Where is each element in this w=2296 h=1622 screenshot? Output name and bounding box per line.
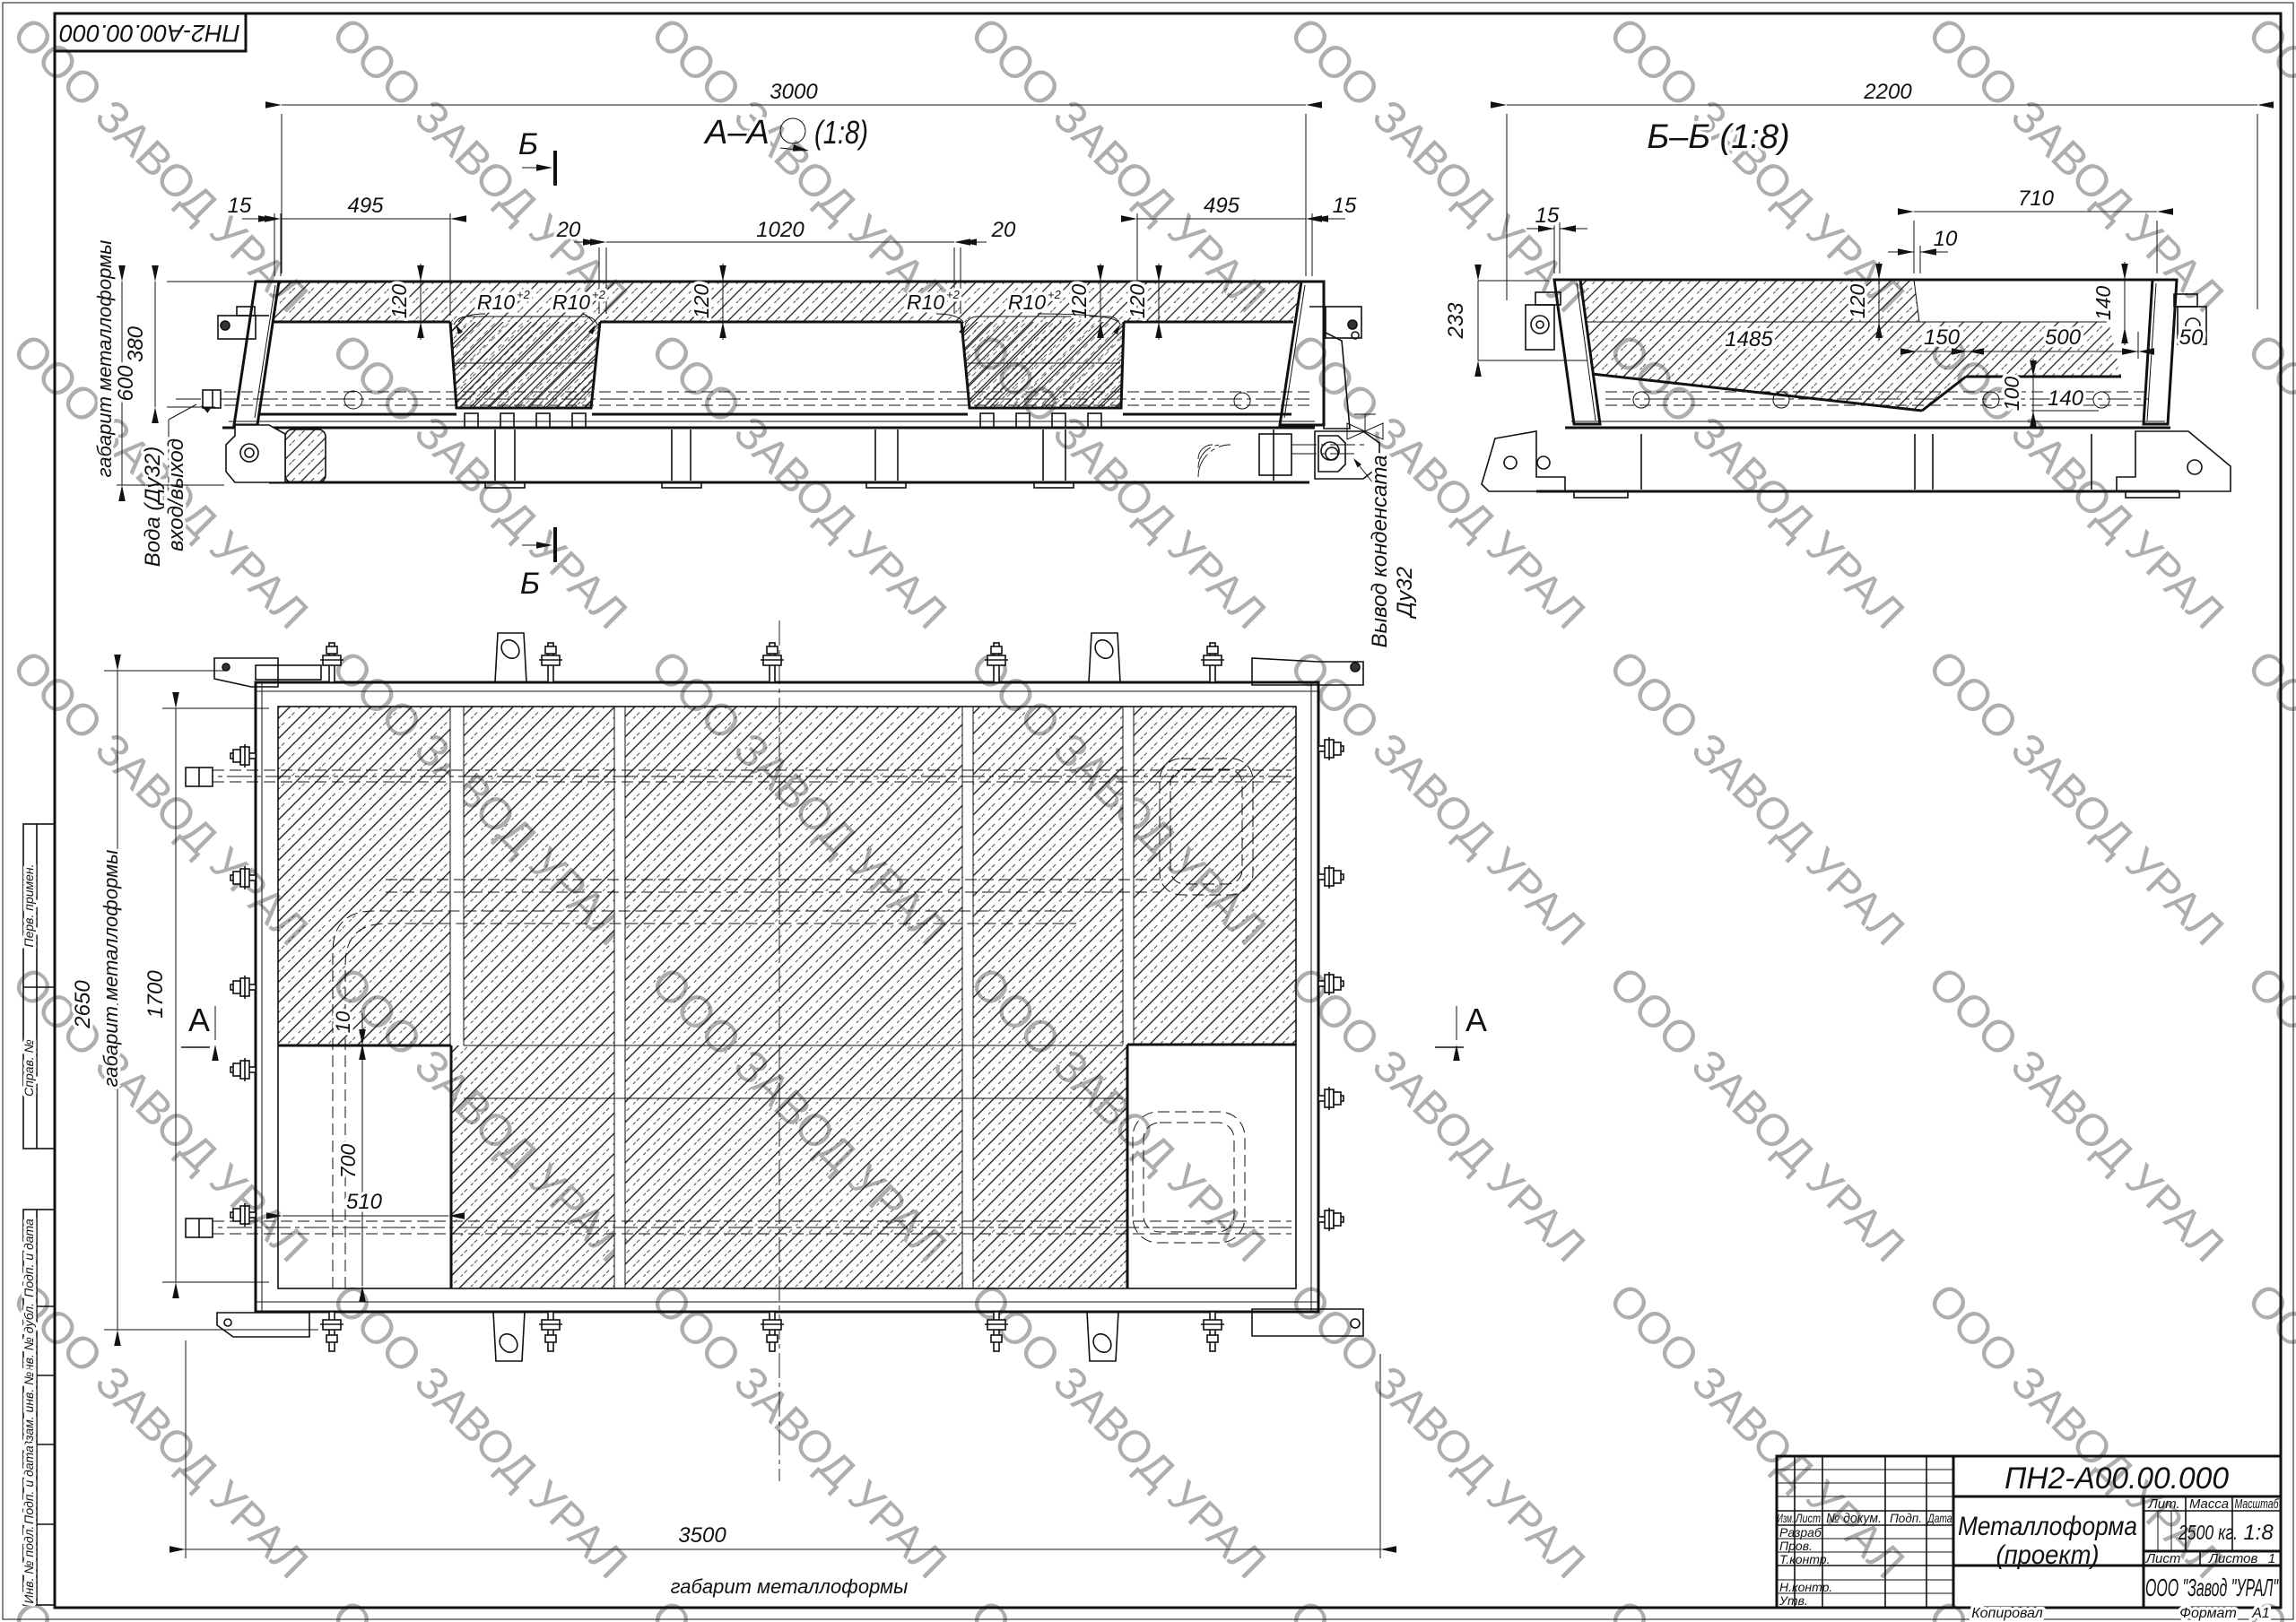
svg-text:2500 кг.: 2500 кг. — [2178, 1521, 2238, 1544]
svg-text:ПН2-А00.00.000: ПН2-А00.00.000 — [59, 20, 239, 47]
svg-text:(проект): (проект) — [1996, 1540, 2100, 1570]
svg-text:Копировал: Копировал — [1971, 1606, 2043, 1621]
svg-text:Масса: Масса — [2189, 1496, 2229, 1512]
svg-text:габарит металлоформы: габарит металлоформы — [93, 240, 116, 478]
svg-text:Б: Б — [518, 127, 538, 161]
svg-text:ООО ЗАВОД УРАЛ: ООО ЗАВОД УРАЛ — [1599, 957, 1914, 1271]
svg-text:ООО ЗАВОД УРАЛ: ООО ЗАВОД УРАЛ — [1280, 7, 1595, 322]
svg-text:ООО ЗАВОД УРАЛ: ООО ЗАВОД УРАЛ — [1599, 7, 1914, 322]
svg-text:20: 20 — [556, 218, 581, 242]
svg-text:120: 120 — [1126, 284, 1149, 319]
svg-text:120: 120 — [387, 284, 411, 319]
svg-text:Лит.: Лит. — [2147, 1496, 2179, 1512]
svg-text:ООО ЗАВОД УРАЛ: ООО ЗАВОД УРАЛ — [322, 7, 637, 322]
svg-text:Инв. № дубл.: Инв. № дубл. — [22, 1303, 36, 1380]
svg-text:+2: +2 — [517, 288, 531, 301]
svg-text:ООО ЗАВОД УРАЛ: ООО ЗАВОД УРАЛ — [1918, 640, 2233, 955]
svg-text:140: 140 — [2048, 386, 2084, 411]
svg-text:Лист: Лист — [2145, 1551, 2181, 1566]
svg-text:R10: R10 — [552, 291, 590, 314]
svg-text:ООО ЗАВОД УРАЛ: ООО ЗАВОД УРАЛ — [1599, 640, 1914, 955]
svg-text:Изм.: Изм. — [1778, 1511, 1795, 1525]
svg-text:Дата: Дата — [1926, 1511, 1952, 1525]
svg-text:ООО ЗАВОД УРАЛ: ООО ЗАВОД УРАЛ — [1280, 1273, 1595, 1588]
svg-text:габарит металлоформы: габарит металлоформы — [671, 1575, 909, 1598]
svg-text:Подп. и дата: Подп. и дата — [22, 1219, 36, 1297]
svg-text:ПН2-А00.00.000: ПН2-А00.00.000 — [2005, 1462, 2229, 1496]
svg-text:1: 1 — [2268, 1551, 2275, 1566]
svg-text:120: 120 — [690, 284, 713, 319]
svg-text:Разраб.: Разраб. — [1779, 1525, 1825, 1540]
svg-text:ООО ЗАВОД УРАЛ: ООО ЗАВОД УРАЛ — [322, 1273, 637, 1588]
svg-text:495: 495 — [1204, 194, 1240, 218]
svg-text:ООО ЗАВОД УРАЛ: ООО ЗАВОД УРАЛ — [961, 1590, 1275, 1622]
svg-text:А–А: А–А — [703, 114, 770, 152]
svg-text:Инв. № подл.: Инв. № подл. — [22, 1526, 36, 1604]
svg-text:1485: 1485 — [1725, 327, 1773, 351]
svg-text:Утв.: Утв. — [1779, 1593, 1808, 1608]
svg-text:Б: Б — [520, 567, 540, 601]
svg-text:3000: 3000 — [770, 80, 818, 104]
svg-text:ООО ЗАВОД УРАЛ: ООО ЗАВОД УРАЛ — [2238, 324, 2296, 638]
svg-text:233: 233 — [1444, 302, 1468, 340]
svg-text:ООО ЗАВОД УРАЛ: ООО ЗАВОД УРАЛ — [961, 7, 1275, 322]
svg-text:Взам. инв. №: Взам. инв. № — [22, 1372, 36, 1450]
svg-text:габарит металлоформы: габарит металлоформы — [100, 850, 122, 1088]
svg-text:А1: А1 — [2251, 1606, 2270, 1621]
svg-text:ООО ЗАВОД УРАЛ: ООО ЗАВОД УРАЛ — [2238, 7, 2296, 322]
svg-text:Б–Б (1:8): Б–Б (1:8) — [1647, 118, 1789, 156]
svg-text:10: 10 — [332, 1010, 354, 1033]
svg-text:510: 510 — [346, 1190, 383, 1214]
svg-text:(1:8): (1:8) — [814, 114, 868, 151]
svg-text:1020: 1020 — [756, 218, 804, 242]
svg-text:ООО ЗАВОД УРАЛ: ООО ЗАВОД УРАЛ — [1599, 1590, 1914, 1622]
svg-text:Пров.: Пров. — [1779, 1539, 1813, 1553]
svg-text:Вывод конденсата: Вывод конденсата — [1368, 455, 1392, 647]
svg-text:2650: 2650 — [71, 980, 95, 1029]
svg-text:ООО ЗАВОД УРАЛ: ООО ЗАВОД УРАЛ — [3, 1273, 317, 1588]
svg-text:Подп.: Подп. — [1890, 1511, 1922, 1525]
svg-text:ООО ЗАВОД УРАЛ: ООО ЗАВОД УРАЛ — [1918, 7, 2233, 322]
svg-text:Ду32: Ду32 — [1393, 567, 1417, 620]
svg-text:ООО ЗАВОД УРАЛ: ООО ЗАВОД УРАЛ — [3, 1590, 317, 1622]
svg-text:Листов: Листов — [2208, 1551, 2258, 1566]
svg-text:+2: +2 — [946, 288, 961, 301]
svg-text:Н.контр.: Н.контр. — [1779, 1580, 1832, 1594]
svg-text:ООО ЗАВОД УРАЛ: ООО ЗАВОД УРАЛ — [2238, 640, 2296, 955]
svg-text:100: 100 — [2000, 377, 2023, 412]
svg-text:150: 150 — [1924, 325, 1961, 350]
svg-text:Формат: Формат — [2179, 1606, 2237, 1621]
svg-text:А: А — [1465, 1002, 1487, 1038]
svg-text:15: 15 — [1333, 194, 1357, 218]
svg-text:Т.контр.: Т.контр. — [1779, 1552, 1830, 1566]
svg-text:ООО ЗАВОД УРАЛ: ООО ЗАВОД УРАЛ — [1280, 1590, 1595, 1622]
svg-text:Лист: Лист — [1795, 1511, 1821, 1525]
svg-text:Масштаб: Масштаб — [2235, 1496, 2279, 1512]
svg-text:Перв. примен.: Перв. примен. — [22, 863, 36, 947]
svg-text:R10: R10 — [477, 291, 515, 314]
svg-text:120: 120 — [1846, 284, 1869, 319]
svg-text:ООО ЗАВОД УРАЛ: ООО ЗАВОД УРАЛ — [3, 7, 317, 322]
svg-text:140: 140 — [2092, 286, 2115, 321]
svg-text:ООО ЗАВОД УРАЛ: ООО ЗАВОД УРАЛ — [1599, 1273, 1914, 1588]
svg-text:ООО ЗАВОД УРАЛ: ООО ЗАВОД УРАЛ — [2238, 957, 2296, 1271]
svg-text:№ докум.: № докум. — [1826, 1511, 1882, 1526]
svg-text:495: 495 — [347, 194, 384, 218]
svg-text:ООО ЗАВОД УРАЛ: ООО ЗАВОД УРАЛ — [1280, 324, 1595, 638]
svg-text:R10: R10 — [1008, 291, 1046, 314]
svg-text:Вода (Ду32): Вода (Ду32) — [141, 447, 165, 567]
svg-text:ООО ЗАВОД УРАЛ: ООО ЗАВОД УРАЛ — [1918, 957, 2233, 1271]
svg-text:1700: 1700 — [143, 970, 168, 1019]
svg-text:1:8: 1:8 — [2243, 1521, 2274, 1545]
svg-text:50: 50 — [2179, 325, 2204, 350]
svg-text:2200: 2200 — [1863, 80, 1912, 104]
svg-text:Подп. и дата: Подп. и дата — [22, 1445, 36, 1524]
svg-text:ООО ЗАВОД УРАЛ: ООО ЗАВОД УРАЛ — [1280, 640, 1595, 955]
svg-text:+2: +2 — [1048, 288, 1062, 301]
svg-text:20: 20 — [991, 218, 1016, 242]
svg-text:ООО ЗАВОД УРАЛ: ООО ЗАВОД УРАЛ — [641, 7, 956, 322]
svg-text:ООО "Завод "УРАЛ": ООО "Завод "УРАЛ" — [2145, 1574, 2279, 1601]
svg-text:600: 600 — [114, 365, 138, 402]
svg-text:Справ. №: Справ. № — [22, 1039, 36, 1097]
svg-text:А: А — [188, 1002, 210, 1038]
svg-text:710: 710 — [2018, 186, 2055, 211]
svg-text:ООО ЗАВОД УРАЛ: ООО ЗАВОД УРАЛ — [3, 640, 317, 955]
svg-text:R10: R10 — [907, 291, 944, 314]
svg-text:15: 15 — [228, 194, 252, 218]
svg-text:ООО ЗАВОД УРАЛ: ООО ЗАВОД УРАЛ — [322, 1590, 637, 1622]
svg-text:120: 120 — [1067, 284, 1091, 319]
svg-text:+2: +2 — [592, 288, 606, 301]
svg-text:15: 15 — [1535, 204, 1560, 228]
svg-text:вход/выход: вход/выход — [164, 438, 188, 551]
svg-text:Металлоформа: Металлоформа — [1958, 1512, 2137, 1541]
svg-text:380: 380 — [124, 325, 148, 362]
svg-text:500: 500 — [2045, 325, 2082, 350]
svg-text:3500: 3500 — [678, 1523, 726, 1548]
svg-text:700: 700 — [336, 1144, 360, 1179]
svg-text:10: 10 — [1934, 227, 1958, 251]
